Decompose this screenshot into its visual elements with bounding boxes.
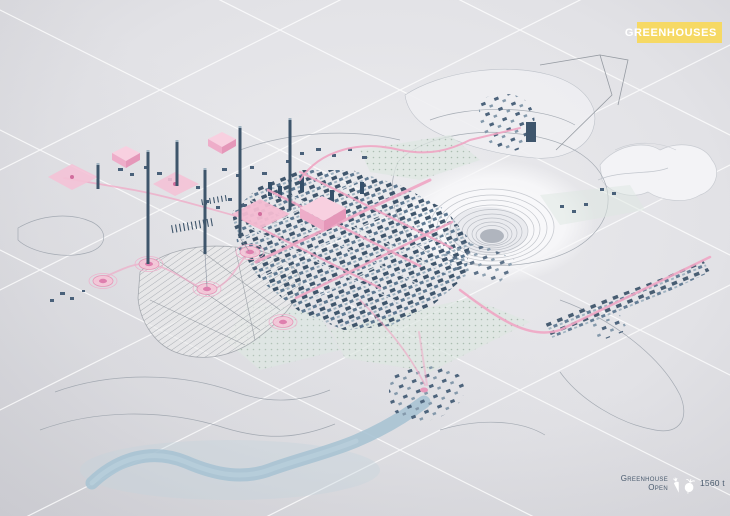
legend-line-open: Open bbox=[648, 483, 668, 492]
legend-line-greenhouse: Greenhouse bbox=[621, 474, 668, 483]
greenhouses-banner: GREENHOUSES bbox=[637, 22, 722, 43]
greenhouses-map-poster: GREENHOUSES Greenhouse Open 1560 t bbox=[0, 0, 730, 516]
banner-label: GREENHOUSES bbox=[625, 27, 717, 39]
legend-labels: Greenhouse Open bbox=[626, 474, 668, 492]
legend-tonnage-value: 1560 t bbox=[700, 478, 725, 488]
legend: Greenhouse Open 1560 t bbox=[626, 472, 725, 494]
turnip-leaf-icon bbox=[681, 476, 697, 495]
map-render bbox=[0, 0, 730, 516]
legend-icons bbox=[672, 472, 696, 494]
